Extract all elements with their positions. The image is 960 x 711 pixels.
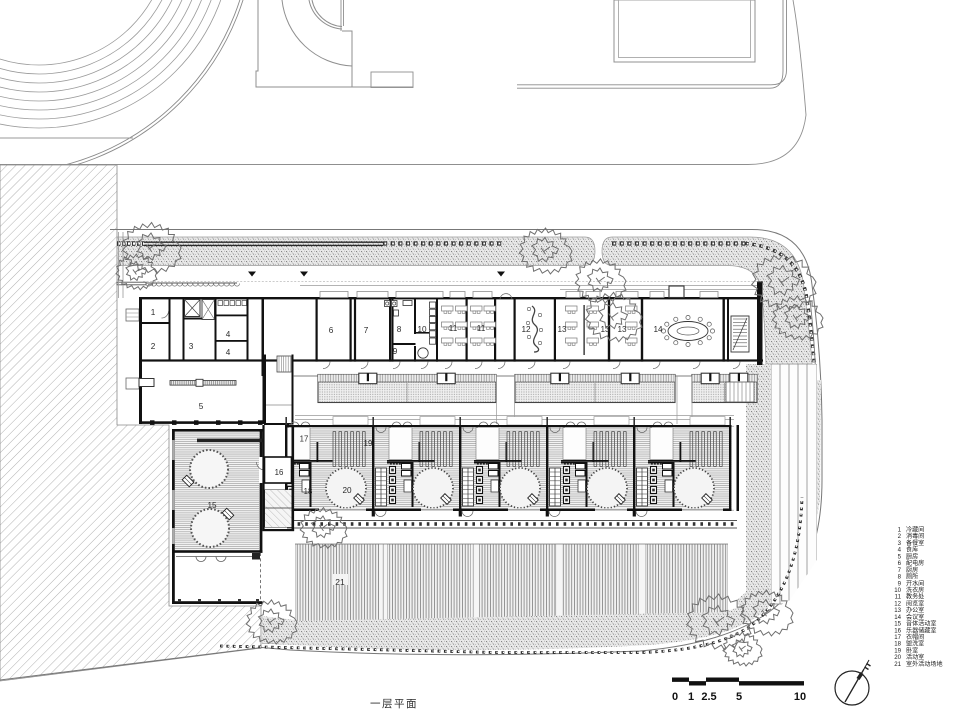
svg-text:13: 13: [557, 325, 567, 334]
svg-text:1: 1: [688, 691, 694, 703]
svg-text:备餐室: 备餐室: [906, 539, 924, 547]
svg-text:盥洗室: 盥洗室: [906, 640, 924, 648]
svg-text:13: 13: [617, 325, 627, 334]
svg-text:4: 4: [226, 330, 231, 339]
svg-text:20: 20: [342, 486, 352, 495]
svg-text:一层平面: 一层平面: [370, 698, 418, 710]
svg-text:5: 5: [736, 691, 742, 703]
svg-text:5: 5: [199, 402, 204, 411]
svg-text:6: 6: [329, 326, 334, 335]
svg-text:4: 4: [226, 348, 231, 357]
svg-text:7: 7: [364, 326, 369, 335]
svg-text:8: 8: [397, 325, 402, 334]
svg-text:21: 21: [335, 577, 345, 587]
svg-text:1: 1: [151, 308, 156, 317]
svg-text:0: 0: [672, 691, 678, 703]
svg-text:2.5: 2.5: [701, 691, 716, 703]
svg-text:15: 15: [207, 501, 217, 510]
svg-text:19: 19: [364, 439, 373, 448]
svg-text:17: 17: [300, 435, 309, 444]
svg-text:21: 21: [894, 661, 901, 668]
svg-text:3: 3: [189, 342, 194, 351]
svg-text:11: 11: [477, 324, 486, 333]
svg-text:12: 12: [521, 325, 531, 334]
svg-text:9: 9: [393, 347, 398, 356]
svg-text:10: 10: [417, 325, 427, 334]
svg-text:18: 18: [304, 487, 313, 496]
svg-text:厕所: 厕所: [906, 573, 918, 581]
svg-text:2: 2: [151, 342, 156, 351]
svg-text:室外活动场地: 室外活动场地: [906, 660, 943, 668]
svg-text:14: 14: [653, 325, 663, 334]
svg-text:16: 16: [275, 468, 284, 477]
svg-text:10: 10: [794, 691, 806, 703]
svg-text:办公室: 办公室: [906, 606, 924, 614]
svg-text:11: 11: [449, 324, 458, 333]
